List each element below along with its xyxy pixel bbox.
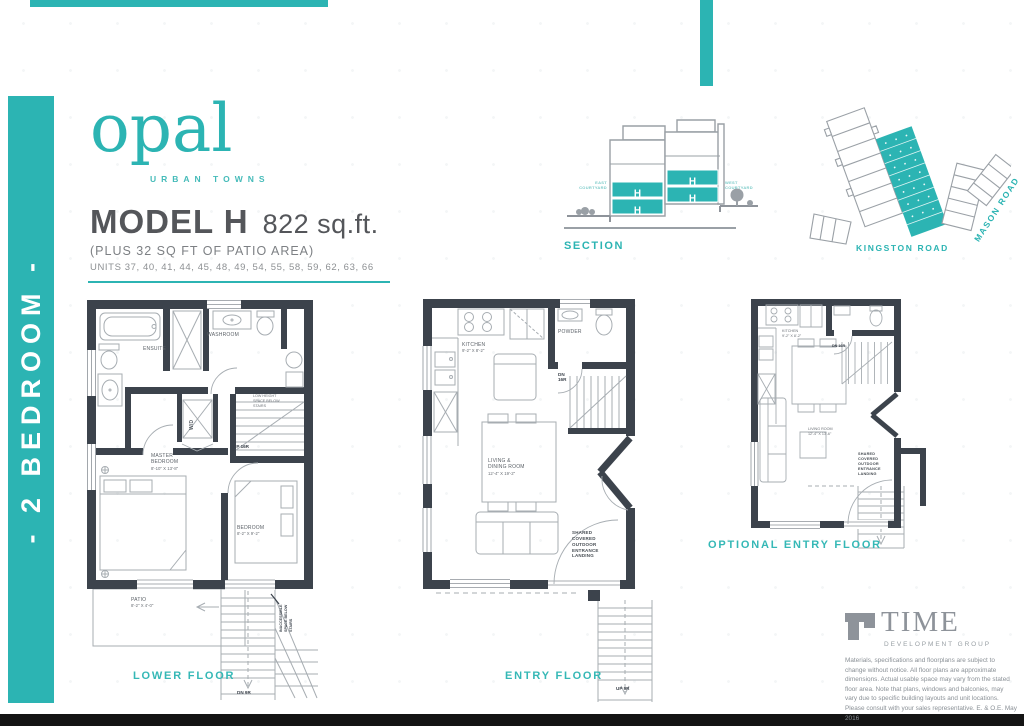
bedroom-type-banner: - 2 BEDROOM -: [8, 96, 54, 703]
shared-landing-note: SHARED COVERED OUTDOOR ENTRANCE LANDING: [572, 530, 608, 559]
units-list: UNITS 37, 40, 41, 44, 45, 48, 49, 54, 55…: [90, 262, 374, 273]
inaccessible-note: INACCESSIBLE SPACE BELOW STAIRS: [279, 602, 293, 632]
time-logo-icon: [845, 610, 875, 640]
model-title-row: MODEL H 822 sq.ft.: [90, 203, 379, 241]
master-bedroom-label: MASTER BEDROOM 8'-10" X 13'-8": [151, 453, 193, 471]
header-rule: [88, 281, 390, 283]
kitchen-label: KITCHEN 9'-2" X 8'-2": [782, 329, 812, 339]
stairs-dn-label: DN 16R: [832, 344, 846, 349]
kitchen-dim: 9'-2" X 8'-2": [782, 334, 801, 338]
west-courtyard-label: WEST COURTYARD: [725, 180, 759, 190]
optional-entry-drawing: [748, 296, 938, 561]
living-dining-dim: 12'-4" X 19'-2": [488, 471, 530, 476]
entry-floor-title: ENTRY FLOOR: [505, 670, 603, 682]
low-height-note: LOW HEIGHT SPACE BELOW STAIRS: [253, 394, 281, 408]
time-logo-text: TIME: [881, 606, 960, 639]
living-room-dim: 12'-4" X 13'-6": [808, 432, 831, 436]
bedroom-name: BEDROOM: [237, 525, 264, 531]
lower-floor-title: LOWER FLOOR: [133, 670, 235, 682]
opal-tagline: URBAN TOWNS: [150, 174, 270, 184]
section-unit-h: H: [689, 194, 696, 205]
top-accent-ribbon: [700, 0, 713, 86]
section-diagram: H H H H EAST COURTYARD WEST COURTYARD: [565, 118, 760, 230]
master-bedroom-name: MASTER BEDROOM: [151, 453, 178, 465]
brochure-page: - 2 BEDROOM - opal URBAN TOWNS MODEL H 8…: [0, 0, 1024, 726]
model-title: MODEL H: [90, 203, 249, 241]
lower-floor-plan: ENSUITE WASHROOM W/D LOW HEIGHT SPACE BE…: [85, 298, 320, 706]
entry-floor-plan: KITCHEN 9'-2" X 8'-2" POWDER DN 16R LIVI…: [420, 296, 655, 708]
shared-landing-note: SHARED COVERED OUTDOOR ENTRANCE LANDING: [858, 452, 888, 477]
kitchen-name: KITCHEN: [782, 329, 798, 333]
washer-dryer-label: W/D: [189, 420, 195, 430]
section-label: SECTION: [564, 240, 624, 252]
stairs-dn-label: DN 16R: [558, 372, 574, 382]
kitchen-label: KITCHEN 9'-2" X 8'-2": [462, 342, 502, 354]
washroom-label: WASHROOM: [207, 332, 239, 338]
bedroom-label: BEDROOM 8'-2" X 9'-2": [237, 525, 277, 537]
stairs-up-label: UP 9R: [616, 686, 630, 691]
section-drawing: H H H H: [565, 118, 760, 230]
living-room-name: LIVING ROOM: [808, 427, 833, 431]
optional-entry-floor-plan: KITCHEN 9'-2" X 8'-2" DN 16R LIVING ROOM…: [748, 296, 938, 561]
patio-label: PATIO 8'-2" X 4'-0": [131, 597, 171, 609]
legal-disclaimer: Materials, specifications and floorplans…: [845, 656, 1017, 723]
kitchen-name: KITCHEN: [462, 342, 485, 348]
living-dining-name: LIVING & DINING ROOM: [488, 458, 525, 470]
opal-logo: opal: [90, 96, 232, 162]
east-courtyard-label: EAST COURTYARD: [573, 180, 607, 190]
master-bedroom-dim: 8'-10" X 13'-8": [151, 466, 193, 471]
ensuite-label: ENSUITE: [143, 346, 166, 352]
lower-floor-drawing: [85, 298, 320, 706]
section-unit-h: H: [634, 206, 641, 217]
section-rule: [564, 227, 736, 229]
bedroom-type-label: - 2 BEDROOM -: [16, 256, 47, 544]
model-area: 822 sq.ft.: [263, 209, 379, 240]
stairs-dn-label: DN 9R: [237, 690, 251, 695]
living-room-label: LIVING ROOM 12'-4" X 13'-6": [808, 427, 840, 437]
optional-entry-floor-title: OPTIONAL ENTRY FLOOR: [708, 539, 882, 551]
section-unit-h: H: [689, 177, 696, 188]
entry-floor-drawing: [420, 296, 655, 708]
powder-label: POWDER: [558, 329, 582, 335]
patio-note: (PLUS 32 SQ FT OF PATIO AREA): [90, 244, 314, 258]
top-accent-strip: [30, 0, 328, 7]
bedroom-dim: 8'-2" X 9'-2": [237, 531, 277, 536]
time-logo-subtext: DEVELOPMENT GROUP: [884, 641, 991, 648]
kingston-road-label: KINGSTON ROAD: [856, 243, 949, 253]
section-unit-h: H: [634, 189, 641, 200]
living-dining-label: LIVING & DINING ROOM 12'-4" X 19'-2": [488, 458, 530, 476]
patio-name: PATIO: [131, 597, 146, 603]
kitchen-dim: 9'-2" X 8'-2": [462, 348, 502, 353]
patio-dim: 8'-2" X 4'-0": [131, 603, 171, 608]
stairs-up-label: UP 16R: [233, 444, 249, 449]
